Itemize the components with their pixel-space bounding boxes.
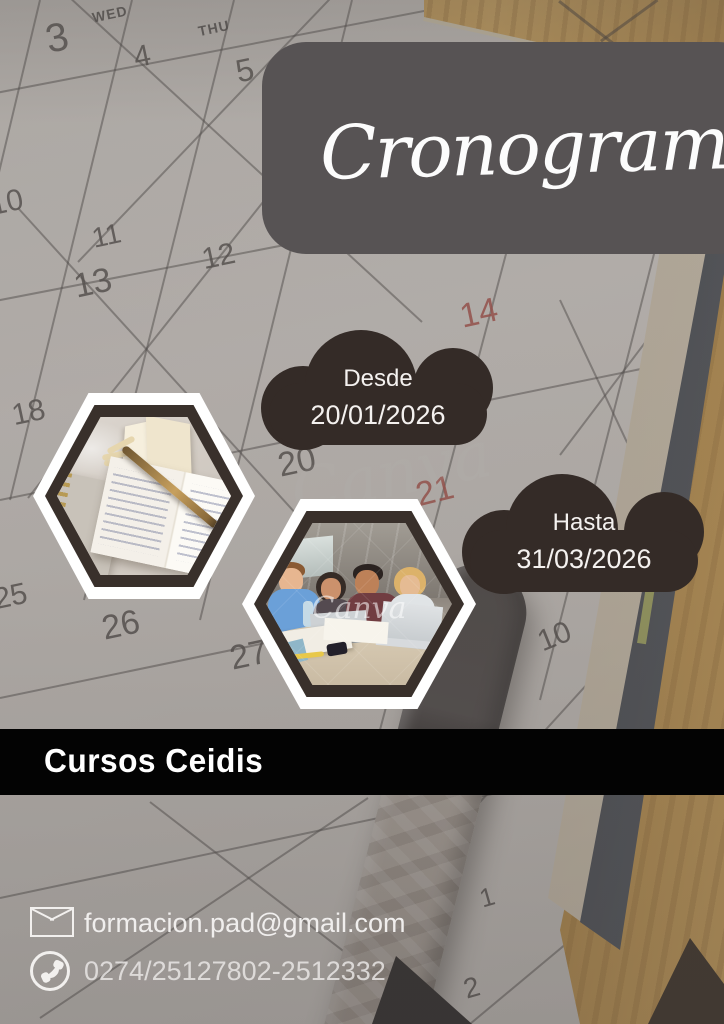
photo-hexagon-notebook bbox=[33, 393, 255, 599]
badge-text: Hasta 31/03/2026 bbox=[464, 504, 704, 592]
phone-icon bbox=[30, 951, 70, 991]
poster-title: Cronograma bbox=[319, 99, 724, 197]
phone-text: 0274/25127802-2512332 bbox=[84, 956, 386, 987]
badge-label: Desde bbox=[263, 360, 493, 397]
banner-title: Cursos Ceidis bbox=[44, 729, 263, 793]
badge-hasta: Hasta 31/03/2026 bbox=[464, 476, 704, 592]
badge-date: 20/01/2026 bbox=[263, 397, 493, 434]
photo-hexagon-students: Canva bbox=[242, 499, 476, 709]
badge-text: Desde 20/01/2026 bbox=[263, 360, 493, 445]
poster-canvas: WEDTHU34510111213141820212526271012 Canv… bbox=[0, 0, 724, 1024]
badge-label: Hasta bbox=[464, 504, 704, 541]
badge-date: 31/03/2026 bbox=[464, 541, 704, 578]
banner: Cursos Ceidis bbox=[0, 729, 724, 795]
badge-desde: Desde 20/01/2026 bbox=[263, 332, 493, 445]
email-icon bbox=[30, 907, 74, 937]
phone-handset-glyph bbox=[37, 956, 62, 981]
canva-watermark: Canva bbox=[266, 591, 452, 626]
email-text: formacion.pad@gmail.com bbox=[84, 908, 406, 939]
title-panel: Cronograma bbox=[262, 42, 724, 254]
